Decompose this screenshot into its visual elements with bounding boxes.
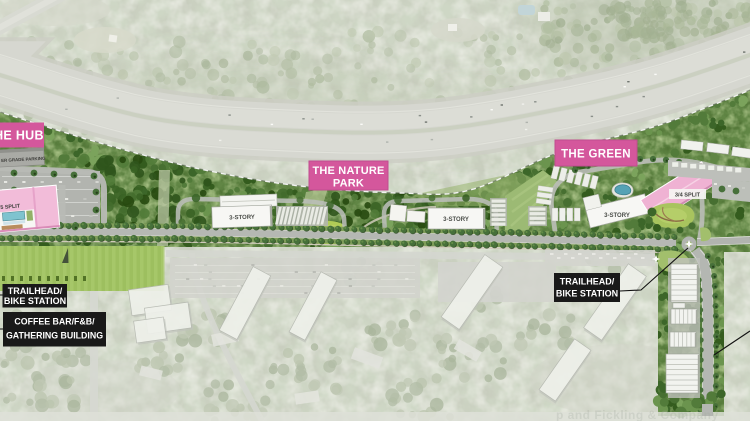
- svg-text:THE HUB: THE HUB: [0, 129, 44, 143]
- svg-text:TRAILHEAD/: TRAILHEAD/: [8, 286, 63, 296]
- svg-text:3-STORY: 3-STORY: [604, 213, 630, 219]
- svg-text:TRAILHEAD/: TRAILHEAD/: [560, 277, 615, 287]
- svg-text:THE GREEN: THE GREEN: [561, 149, 631, 161]
- svg-text:3/4 SPLIT: 3/4 SPLIT: [675, 193, 701, 199]
- svg-text:THE NATURE: THE NATURE: [312, 165, 384, 177]
- svg-text:3-STORY: 3-STORY: [229, 215, 255, 222]
- svg-text:p and Fickling & Company: p and Fickling & Company: [556, 408, 719, 421]
- svg-text:BIKE STATION: BIKE STATION: [4, 296, 66, 306]
- svg-text:COFFEE BAR/F&B/: COFFEE BAR/F&B/: [14, 317, 95, 327]
- svg-text:GATHERING BUILDING: GATHERING BUILDING: [6, 331, 103, 341]
- svg-text:BIKE STATION: BIKE STATION: [556, 289, 618, 299]
- svg-text:3-STORY: 3-STORY: [443, 217, 469, 223]
- svg-text:PARK: PARK: [333, 178, 364, 190]
